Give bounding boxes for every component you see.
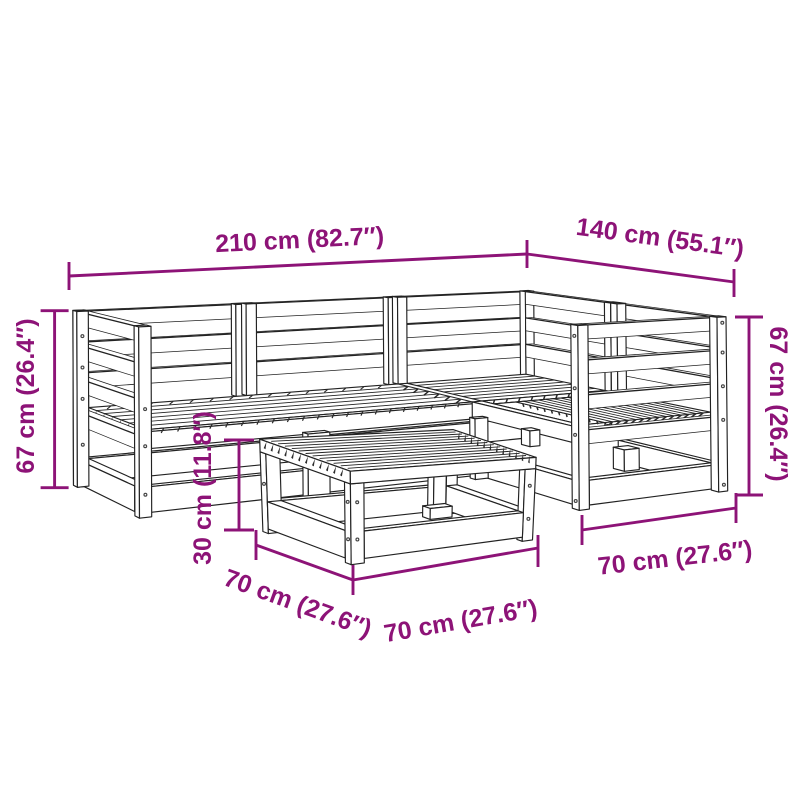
svg-text:67 cm (26.4″): 67 cm (26.4″) [764,326,792,481]
svg-text:30 cm (11.8″): 30 cm (11.8″) [189,411,217,565]
svg-text:67 cm (26.4″): 67 cm (26.4″) [12,318,40,473]
